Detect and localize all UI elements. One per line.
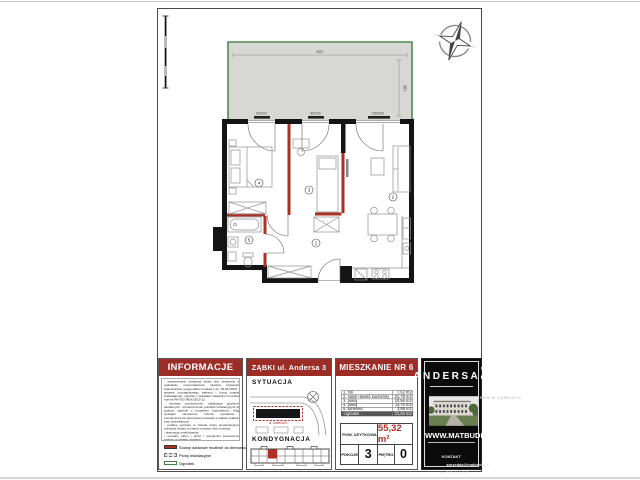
location-panel: ZĄBKI ul. Andersa 3 SYTUACJA ul. Andersa… bbox=[246, 358, 332, 470]
info-panel: INFORMACJE - powierzchnia użytkowa lokal… bbox=[158, 358, 243, 470]
contact-phone: tel: 793-444-866 bbox=[425, 462, 478, 480]
building-photo bbox=[429, 395, 478, 427]
site-building bbox=[256, 409, 300, 418]
brand-panel: ANDERSA 3 NOWY ADRES W ZĄBKACH bbox=[421, 358, 482, 470]
door-swings bbox=[248, 124, 383, 281]
brand-website: WWW.MATBUDD.PL bbox=[425, 431, 478, 440]
usable-area-label: POW. UŻYTKOWA bbox=[341, 424, 378, 444]
scale-bar-icon bbox=[163, 16, 169, 89]
room-marker-hall: 1 bbox=[312, 239, 320, 247]
floor-label: PIĘTRO bbox=[378, 444, 395, 464]
table-row-garden: -ogródek 21,84 m2 bbox=[341, 411, 413, 416]
svg-text:150/220: 150/220 bbox=[372, 112, 384, 116]
apartment-panel-title: MIESZKANIE NR 6 bbox=[336, 359, 417, 376]
brand-logo-number: 3 bbox=[480, 365, 490, 382]
location-panel-title: ZĄBKI ul. Andersa 3 bbox=[247, 359, 331, 376]
sytuacja-label: SYTUACJA bbox=[252, 379, 293, 386]
room-marker-bathroom: 5 bbox=[245, 236, 253, 244]
room-marker-bedroom3: 3 bbox=[305, 186, 313, 194]
legend-item-label: Piony instalacyjne bbox=[179, 453, 211, 458]
legend-red-swatch-icon bbox=[164, 445, 177, 450]
apartment-panel: MIESZKANIE NR 6 1. hol 7,62 m2 2. salon+… bbox=[335, 358, 418, 470]
screen-edge-line bbox=[0, 1, 640, 2]
floor-overview-map bbox=[249, 445, 331, 469]
dim-height-label: 381 bbox=[403, 85, 408, 93]
brand-logo: ANDERSA 3 bbox=[425, 365, 478, 382]
info-text-box: - powierzchnia użytkowa lokalu jest okre… bbox=[161, 378, 240, 441]
drawing-sheet: 621 381 90/220 90/220 150/220 bbox=[0, 0, 640, 480]
screen-edge-line bbox=[0, 477, 640, 479]
legend-item-garden: Ogródek bbox=[164, 459, 210, 467]
legend-item-shafts: Piony instalacyjne bbox=[164, 451, 243, 459]
dim-width-label: 621 bbox=[317, 49, 325, 54]
windows bbox=[248, 120, 400, 280]
usable-area-value: 55,32 m² bbox=[378, 424, 412, 444]
structural-walls bbox=[213, 119, 414, 283]
brand-logo-text: ANDERSA bbox=[413, 371, 480, 382]
rooms-count-label: POKOJE bbox=[341, 444, 359, 464]
legend-green-swatch-icon bbox=[164, 461, 177, 466]
floor-value: 0 bbox=[395, 444, 412, 464]
brand-divider bbox=[428, 442, 475, 443]
room-marker-living: 2 bbox=[389, 193, 397, 201]
site-map: ul. Andersa 3 bbox=[249, 388, 331, 435]
apartment-stats-box: POW. UŻYTKOWA 55,32 m² POKOJE 3 PIĘTRO 0 bbox=[340, 423, 413, 465]
brand-inner-frame: ANDERSA 3 NOWY ADRES W ZĄBKACH bbox=[424, 361, 479, 467]
svg-text:90/220: 90/220 bbox=[310, 112, 320, 116]
floor-plan-canvas: 621 381 90/220 90/220 150/220 bbox=[157, 8, 482, 356]
partition-walls-red bbox=[227, 124, 345, 267]
compass-rose-icon bbox=[429, 15, 482, 68]
rooms-count-value: 3 bbox=[359, 444, 377, 464]
site-neighbor-buildings bbox=[256, 427, 303, 433]
furniture bbox=[228, 139, 411, 280]
svg-text:90/220: 90/220 bbox=[256, 112, 266, 116]
legend-dashed-swatch-icon bbox=[164, 453, 177, 458]
room-area-table: 1. hol 7,62 m2 2. salon+aneks kuchenny 2… bbox=[341, 391, 413, 416]
info-panel-title: INFORMACJE bbox=[159, 359, 242, 376]
info-disclaimer-text: - powierzchnia użytkowa lokalu jest okre… bbox=[164, 380, 240, 441]
kondygnacja-label: KONDYGNACJA bbox=[252, 436, 311, 443]
legend-item-label: Ogródek bbox=[179, 461, 194, 466]
room-marker-bedroom4: 4 bbox=[255, 179, 263, 187]
site-street-label: ul. Andersa 3 bbox=[269, 421, 288, 425]
floor-selected-unit bbox=[268, 450, 277, 459]
legend-item-label: Ściany działowe możliwe do demontażu bbox=[179, 445, 250, 450]
